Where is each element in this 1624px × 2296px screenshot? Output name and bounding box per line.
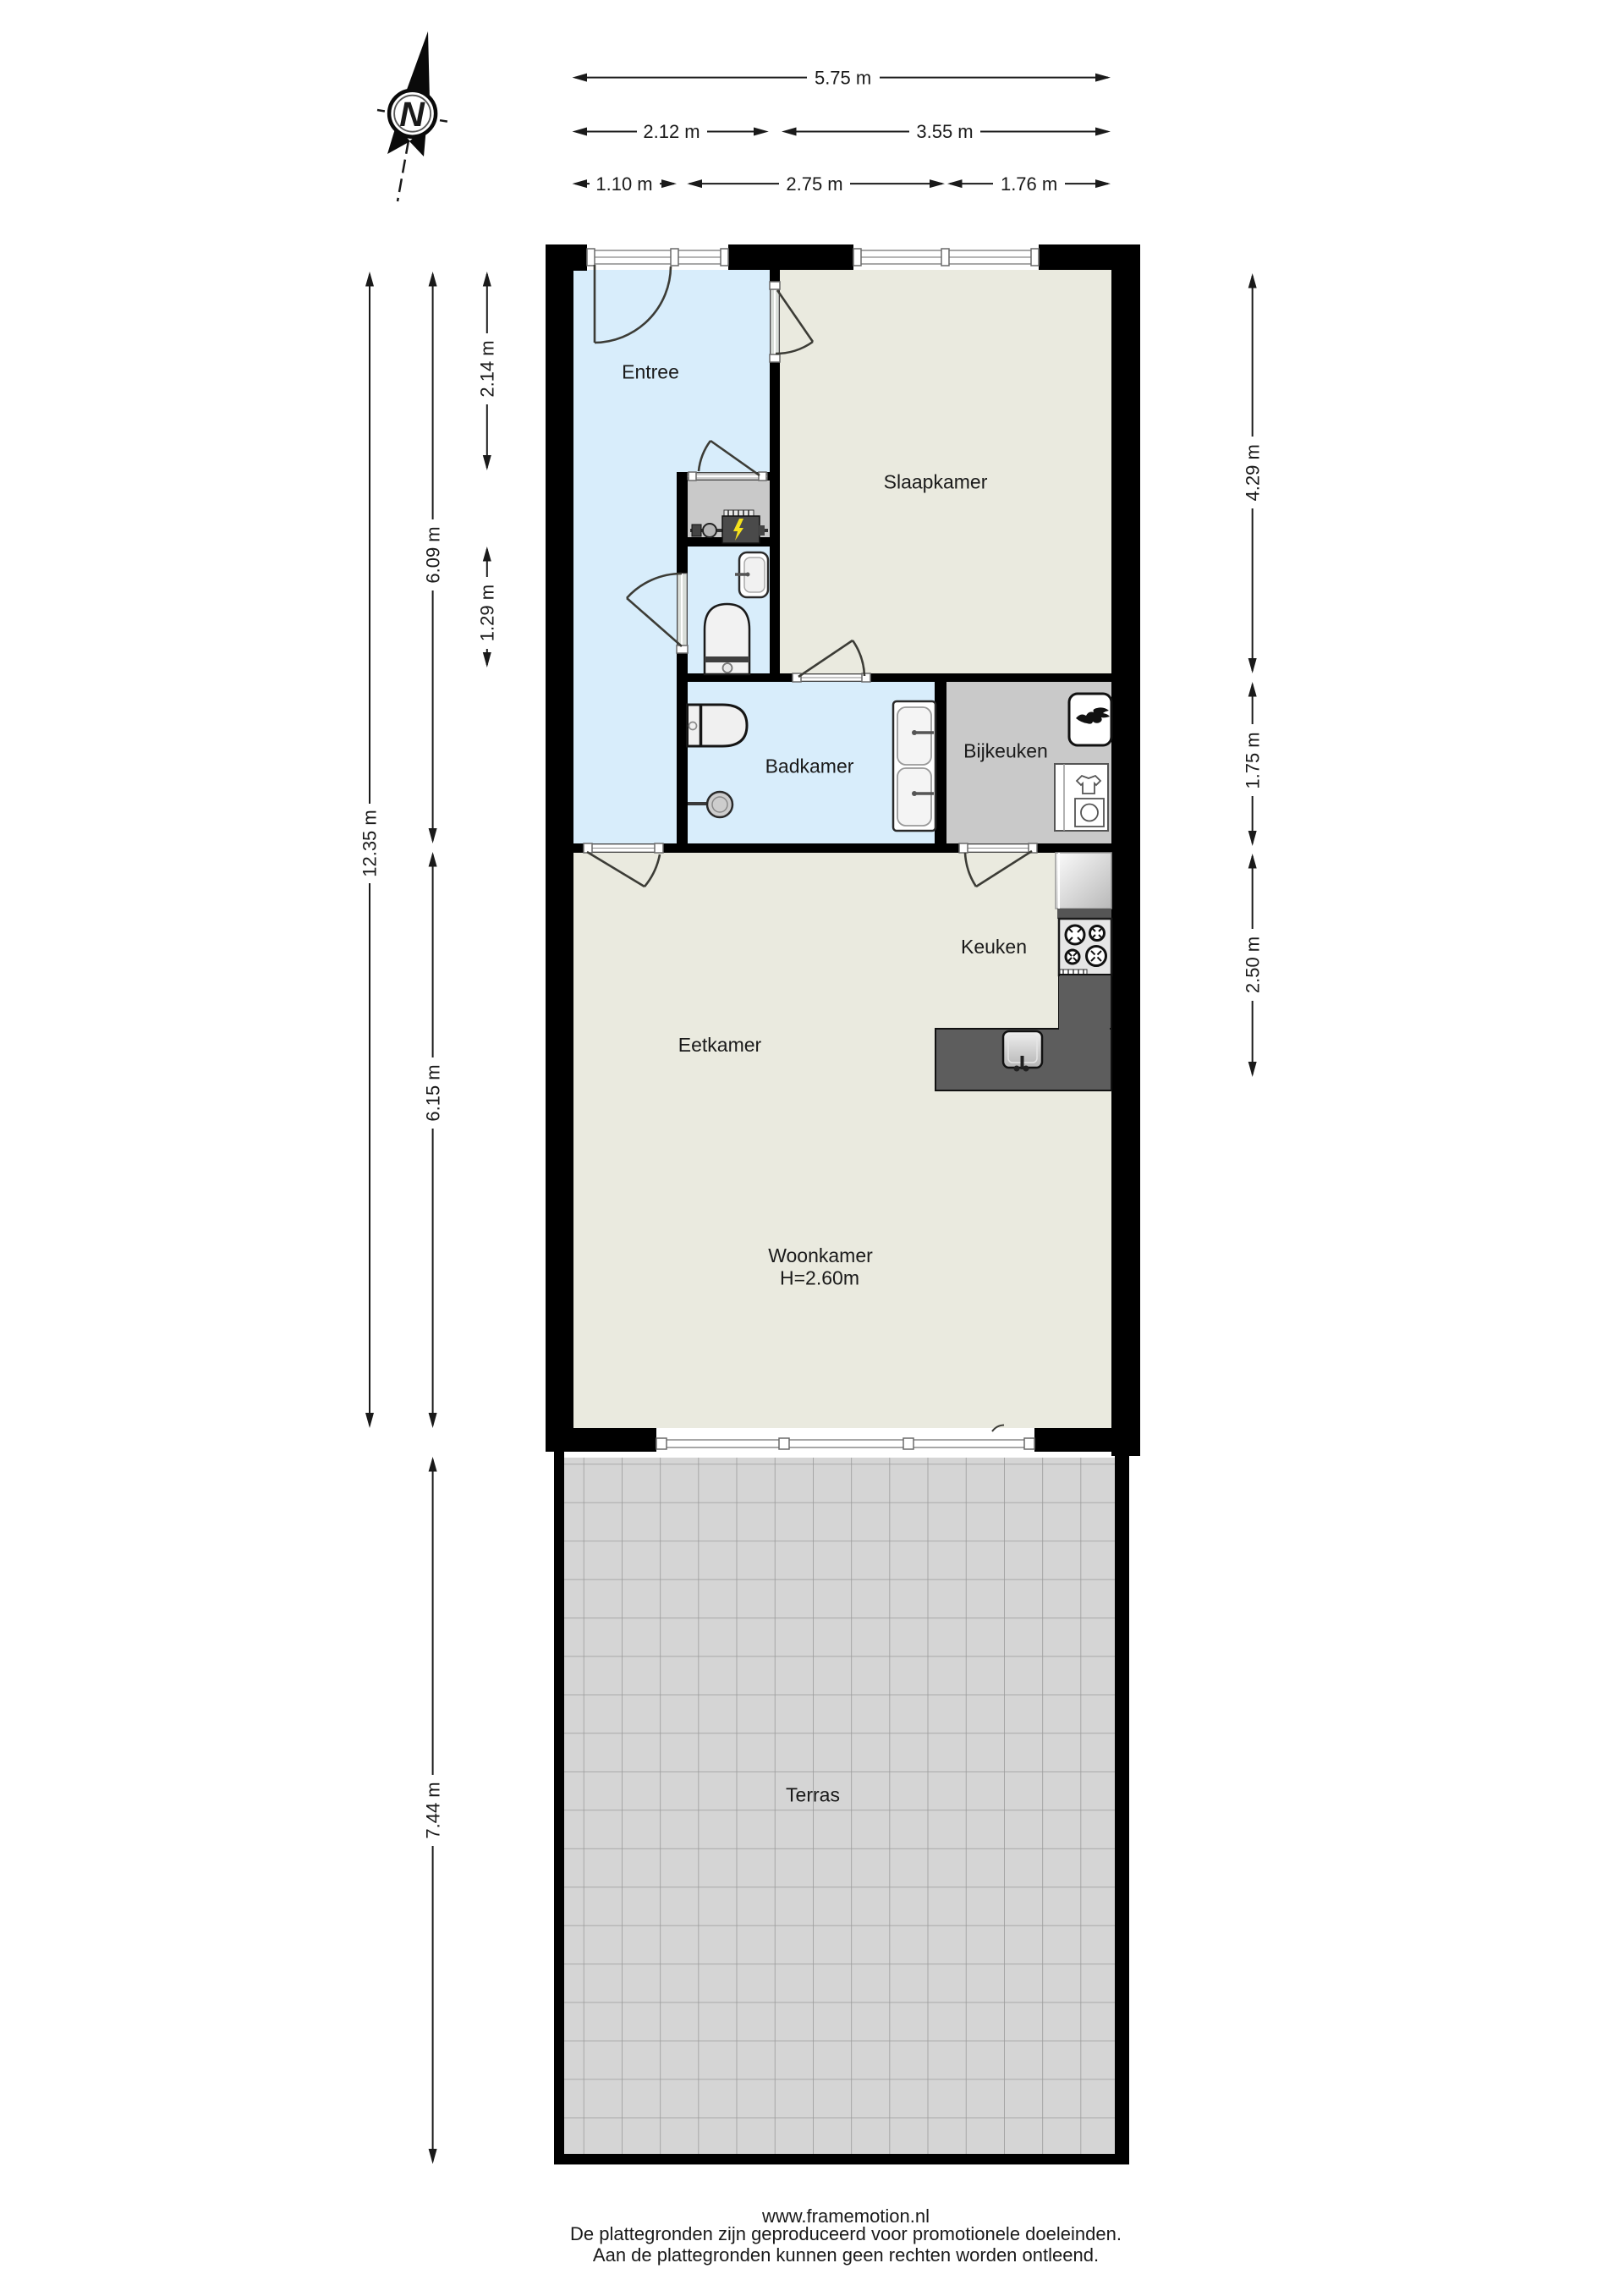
- svg-text:7.44 m: 7.44 m: [422, 1782, 443, 1838]
- svg-text:H=2.60m: H=2.60m: [780, 1267, 859, 1289]
- svg-text:6.09 m: 6.09 m: [422, 526, 443, 583]
- svg-text:3.55 m: 3.55 m: [916, 121, 973, 142]
- svg-text:De plattegronden zijn geproduc: De plattegronden zijn geproduceerd voor …: [570, 2223, 1122, 2244]
- svg-text:1.76 m: 1.76 m: [1001, 173, 1057, 195]
- svg-text:Woonkamer: Woonkamer: [768, 1244, 873, 1266]
- svg-text:Slaapkamer: Slaapkamer: [884, 471, 988, 493]
- svg-text:2.75 m: 2.75 m: [786, 173, 842, 195]
- svg-text:12.35 m: 12.35 m: [359, 810, 381, 877]
- svg-text:N: N: [399, 95, 425, 134]
- svg-text:2.50 m: 2.50 m: [1242, 937, 1263, 993]
- svg-text:4.29 m: 4.29 m: [1242, 444, 1263, 501]
- svg-text:Badkamer: Badkamer: [765, 755, 854, 777]
- svg-text:Keuken: Keuken: [961, 936, 1027, 958]
- svg-text:1.10 m: 1.10 m: [595, 173, 652, 195]
- svg-text:2.14 m: 2.14 m: [477, 340, 498, 397]
- svg-text:Aan de plattegronden kunnen ge: Aan de plattegronden kunnen geen rechten…: [593, 2244, 1099, 2266]
- svg-text:Terras: Terras: [786, 1784, 840, 1806]
- svg-text:6.15 m: 6.15 m: [422, 1064, 443, 1121]
- svg-text:Bijkeuken: Bijkeuken: [963, 740, 1048, 762]
- svg-text:Eetkamer: Eetkamer: [678, 1034, 762, 1056]
- svg-text:2.12 m: 2.12 m: [643, 121, 700, 142]
- svg-text:5.75 m: 5.75 m: [815, 67, 871, 88]
- svg-text:1.29 m: 1.29 m: [477, 585, 498, 641]
- svg-text:Entree: Entree: [622, 361, 679, 383]
- svg-text:1.75 m: 1.75 m: [1242, 732, 1263, 788]
